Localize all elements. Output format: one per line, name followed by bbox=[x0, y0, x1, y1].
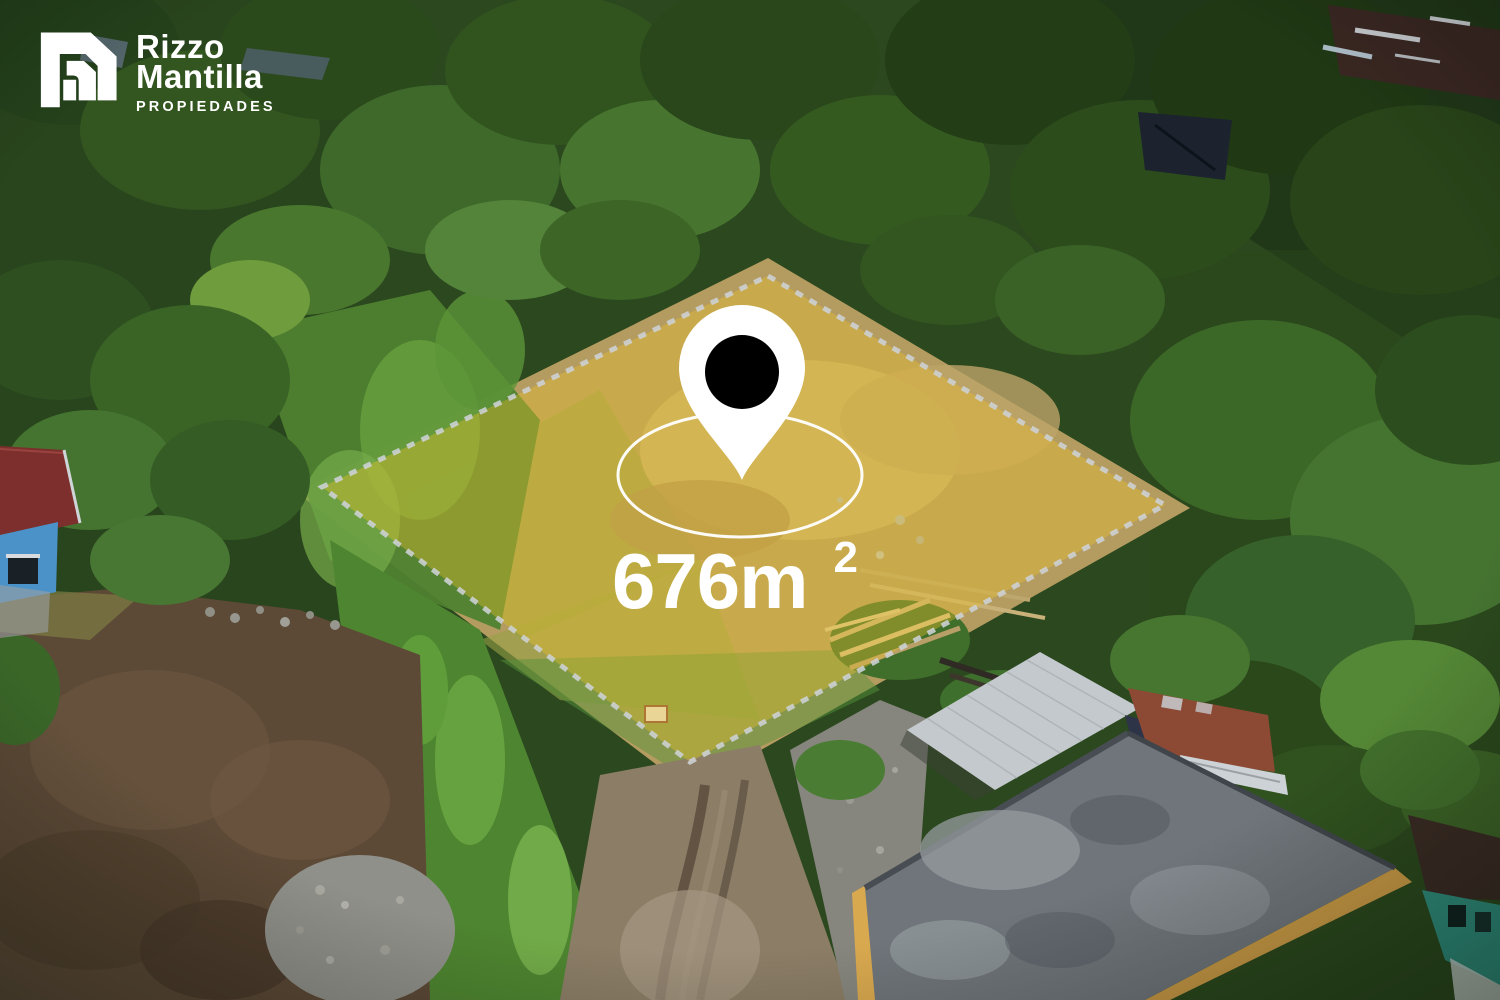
brand-logo-text: Rizzo Mantilla PROPIEDADES bbox=[136, 32, 276, 115]
brand-logo-mark-icon bbox=[34, 28, 120, 110]
brand-tagline: PROPIEDADES bbox=[136, 99, 276, 115]
property-listing-photo: 676m 2 Rizzo Mantilla PROPIEDADES bbox=[0, 0, 1500, 1000]
parcel-overlay bbox=[0, 0, 1500, 1000]
brand-name-line2: Mantilla bbox=[136, 62, 276, 92]
area-superscript: 2 bbox=[834, 536, 858, 580]
area-label: 676m 2 bbox=[612, 542, 858, 620]
brand-logo: Rizzo Mantilla PROPIEDADES bbox=[34, 28, 276, 115]
area-value: 676m bbox=[612, 542, 808, 620]
pin-dot bbox=[705, 335, 779, 409]
